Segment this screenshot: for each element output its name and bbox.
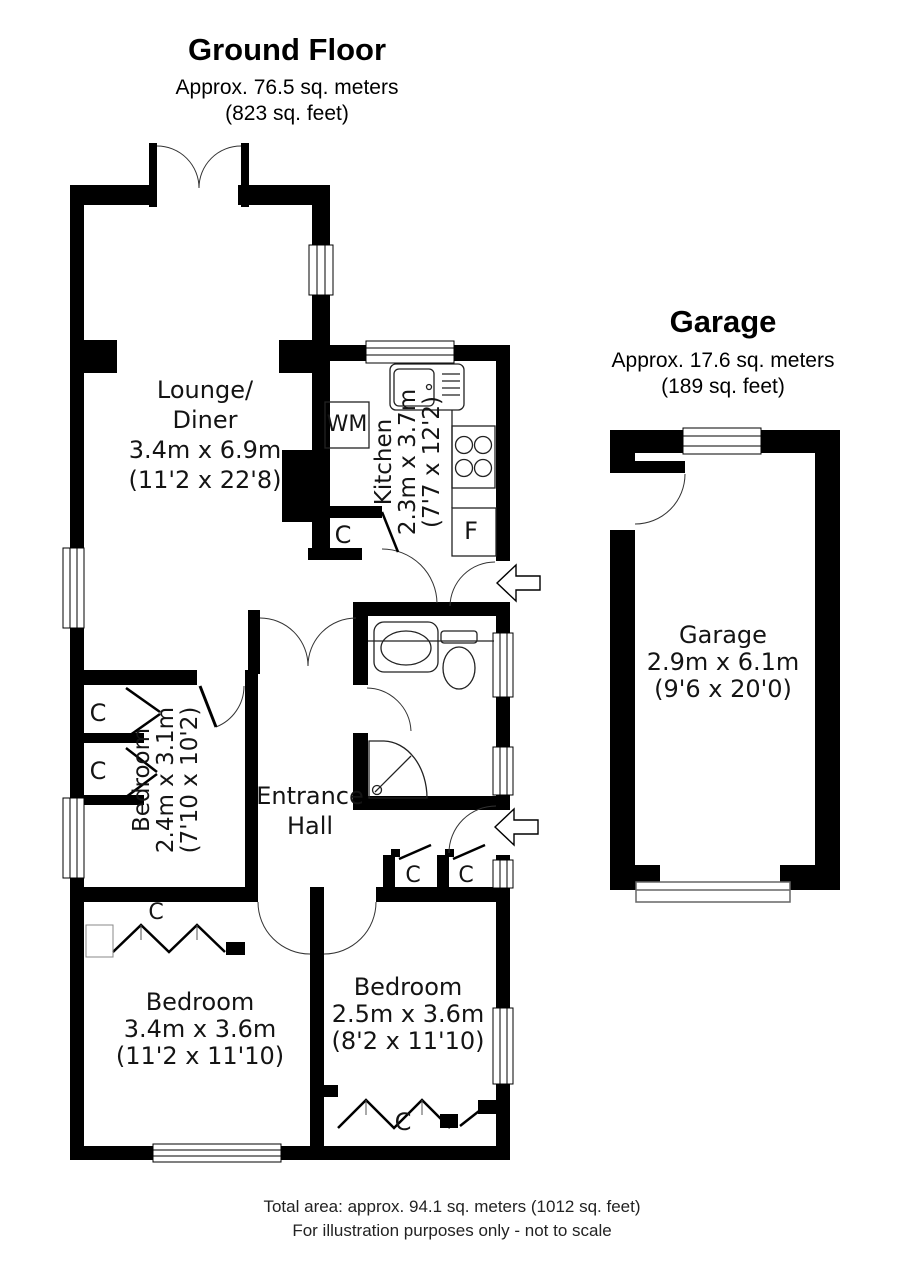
garage-title: Garage bbox=[670, 304, 777, 340]
door-arcs bbox=[157, 146, 685, 954]
footer-disclaimer: For illustration purposes only - not to … bbox=[292, 1219, 611, 1243]
room-label-entrance-hall: Entrance Hall bbox=[256, 781, 364, 841]
room-name: Garage bbox=[647, 622, 800, 649]
footer-total-area: Total area: approx. 94.1 sq. meters (101… bbox=[263, 1195, 640, 1219]
garage-area-metric: Approx. 17.6 sq. meters bbox=[612, 349, 835, 373]
room-dims-metric: 3.4m x 3.6m bbox=[116, 1016, 284, 1043]
window bbox=[493, 747, 513, 795]
window bbox=[153, 1144, 281, 1162]
room-label-garage: Garage 2.9m x 6.1m (9'6 x 20'0) bbox=[647, 622, 800, 703]
room-name: Diner bbox=[129, 405, 282, 435]
fridge-label: F bbox=[464, 517, 478, 545]
bifold-doors bbox=[113, 925, 225, 952]
ground-floor-area-metric: Approx. 76.5 sq. meters bbox=[176, 76, 399, 100]
cupboard-label: C bbox=[335, 521, 352, 549]
garage-area-imperial: (189 sq. feet) bbox=[661, 375, 785, 399]
wardrobe-outline bbox=[86, 925, 113, 957]
garage-door bbox=[636, 882, 790, 902]
door-arc bbox=[450, 562, 495, 606]
door-arc bbox=[216, 686, 244, 727]
room-dims-metric: 2.4m x 3.1m bbox=[154, 707, 178, 854]
cupboard-label: C bbox=[458, 863, 473, 888]
door-leaf bbox=[241, 143, 249, 207]
room-dims-imperial: (11'2 x 22'8) bbox=[129, 465, 282, 495]
cupboard-label: C bbox=[405, 863, 420, 888]
door-arc bbox=[157, 146, 199, 188]
entry-arrow-icon bbox=[495, 809, 538, 845]
cupboard-label: C bbox=[395, 1108, 412, 1136]
room-name: Lounge/ bbox=[129, 375, 282, 405]
door-arc bbox=[260, 618, 308, 666]
room-name: Bedroom bbox=[332, 974, 485, 1001]
window bbox=[683, 428, 761, 454]
window bbox=[366, 341, 454, 363]
door-arc bbox=[635, 474, 685, 524]
floor-plan: Ground Floor Approx. 76.5 sq. meters (82… bbox=[0, 0, 905, 1280]
room-name: Bedroom bbox=[130, 707, 154, 854]
door-arc bbox=[308, 618, 356, 666]
room-name: Hall bbox=[256, 811, 364, 841]
window bbox=[63, 548, 84, 628]
room-name: Bedroom bbox=[116, 989, 284, 1016]
cupboard-label: C bbox=[148, 900, 163, 925]
toilet-icon bbox=[441, 631, 477, 689]
room-dims-metric: 2.5m x 3.6m bbox=[332, 1001, 485, 1028]
room-dims-imperial: (7'10 x 10'2) bbox=[178, 707, 202, 854]
room-dims-imperial: (7'7 x 12'2) bbox=[420, 389, 444, 535]
room-label-bedroom-bottom-right: Bedroom 2.5m x 3.6m (8'2 x 11'10) bbox=[332, 974, 485, 1055]
room-label-kitchen: Kitchen 2.3m x 3.7m (7'7 x 12'2) bbox=[372, 389, 444, 535]
door-leaf bbox=[635, 461, 685, 473]
room-dims-imperial: (9'6 x 20'0) bbox=[647, 676, 800, 703]
window bbox=[493, 1008, 513, 1084]
hob-icon bbox=[452, 426, 495, 488]
room-label-bedroom-mid: Bedroom 2.4m x 3.1m (7'10 x 10'2) bbox=[130, 707, 202, 854]
door-arc bbox=[324, 902, 376, 954]
shower-icon bbox=[369, 741, 427, 798]
window bbox=[493, 860, 513, 888]
door-arc bbox=[449, 806, 496, 853]
entry-arrow-icon bbox=[497, 565, 540, 601]
door-arc bbox=[367, 688, 411, 731]
room-label-lounge: Lounge/ Diner 3.4m x 6.9m (11'2 x 22'8) bbox=[129, 375, 282, 495]
ground-floor-area-imperial: (823 sq. feet) bbox=[225, 102, 349, 126]
washing-machine-label: WM bbox=[327, 412, 368, 437]
room-dims-metric: 3.4m x 6.9m bbox=[129, 435, 282, 465]
cupboard-label: C bbox=[90, 699, 107, 727]
room-dims-imperial: (8'2 x 11'10) bbox=[332, 1028, 485, 1055]
window bbox=[309, 245, 333, 295]
room-dims-metric: 2.9m x 6.1m bbox=[647, 649, 800, 676]
room-label-bedroom-bottom-left: Bedroom 3.4m x 3.6m (11'2 x 11'10) bbox=[116, 989, 284, 1070]
door-arc bbox=[258, 902, 310, 954]
room-name: Entrance bbox=[256, 781, 364, 811]
room-dims-imperial: (11'2 x 11'10) bbox=[116, 1043, 284, 1070]
room-dims-metric: 2.3m x 3.7m bbox=[396, 389, 420, 535]
door-leaf bbox=[149, 143, 157, 207]
ground-floor-title: Ground Floor bbox=[188, 32, 386, 68]
door-arc bbox=[382, 549, 437, 603]
cupboard-label: C bbox=[90, 757, 107, 785]
door-arc bbox=[199, 146, 241, 188]
basin-icon bbox=[374, 622, 438, 672]
room-name: Kitchen bbox=[372, 389, 396, 535]
window bbox=[63, 798, 84, 878]
window bbox=[493, 633, 513, 697]
